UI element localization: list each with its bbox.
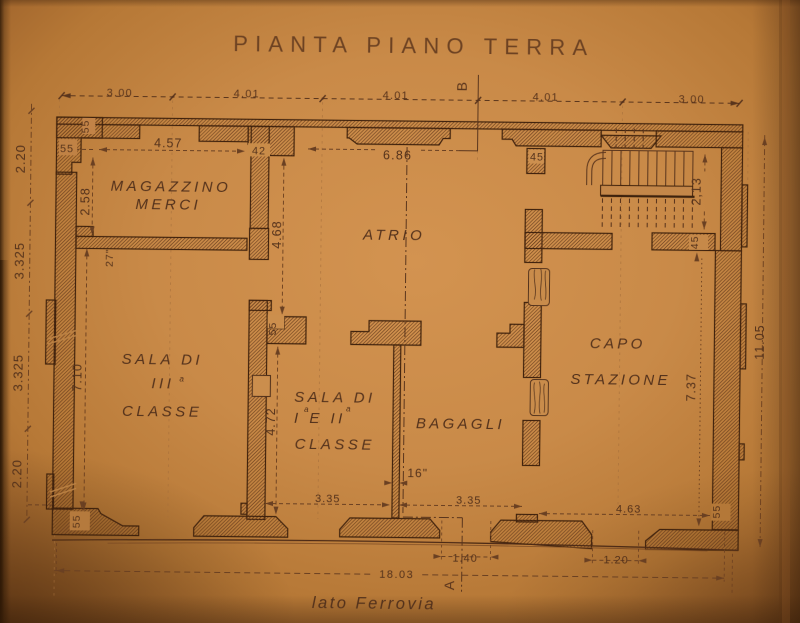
svg-text:45: 45 <box>689 235 701 249</box>
svg-text:3.325: 3.325 <box>10 354 25 392</box>
svg-text:3.325: 3.325 <box>12 242 27 280</box>
svg-text:III: III <box>151 375 174 392</box>
svg-text:6.86: 6.86 <box>383 148 412 162</box>
svg-text:7.10: 7.10 <box>70 363 84 392</box>
svg-text:B: B <box>454 82 470 92</box>
svg-text:2.20: 2.20 <box>13 144 28 173</box>
svg-text:4.72: 4.72 <box>264 407 278 436</box>
svg-text:3.00: 3.00 <box>107 87 133 99</box>
svg-text:CAPO: CAPO <box>590 335 646 353</box>
svg-text:3.35: 3.35 <box>456 495 482 507</box>
svg-text:3.35: 3.35 <box>315 493 341 505</box>
svg-text:55: 55 <box>711 505 723 519</box>
svg-text:1.20: 1.20 <box>603 554 629 566</box>
svg-text:CLASSE: CLASSE <box>295 436 375 454</box>
svg-text:55: 55 <box>60 143 74 155</box>
svg-text:4.01: 4.01 <box>234 88 260 100</box>
svg-text:lato Ferrovia: lato Ferrovia <box>312 594 436 613</box>
svg-text:7.37: 7.37 <box>684 373 698 402</box>
svg-text:ATRIO: ATRIO <box>362 227 425 245</box>
svg-text:PIANTA PIANO TERRA: PIANTA PIANO TERRA <box>233 31 594 60</box>
svg-text:16": 16" <box>407 466 428 480</box>
svg-text:55: 55 <box>267 322 279 336</box>
svg-text:55: 55 <box>80 120 92 134</box>
svg-text:A: A <box>441 580 457 590</box>
svg-text:27": 27" <box>104 248 116 267</box>
svg-text:1.40: 1.40 <box>452 553 478 565</box>
svg-text:4.01: 4.01 <box>383 90 409 102</box>
svg-text:2.58: 2.58 <box>78 187 92 216</box>
svg-text:4.57: 4.57 <box>154 136 183 150</box>
svg-text:42: 42 <box>252 145 266 157</box>
svg-text:11.05: 11.05 <box>753 324 767 360</box>
svg-text:2,13: 2,13 <box>689 177 703 206</box>
svg-text:a: a <box>346 404 351 413</box>
svg-text:STAZIONE: STAZIONE <box>570 371 670 389</box>
svg-text:I E II: I E II <box>294 410 346 428</box>
svg-text:MERCI: MERCI <box>135 196 201 214</box>
svg-text:a: a <box>304 405 309 414</box>
svg-text:MAGAZZINO: MAGAZZINO <box>111 178 232 196</box>
svg-text:SALA DI: SALA DI <box>122 351 204 369</box>
svg-text:4.68: 4.68 <box>270 220 284 249</box>
svg-text:2.20: 2.20 <box>9 459 24 488</box>
svg-text:BAGAGLI: BAGAGLI <box>416 415 505 433</box>
svg-text:3.00: 3.00 <box>679 94 705 106</box>
svg-text:4.63: 4.63 <box>616 503 642 515</box>
svg-text:CLASSE: CLASSE <box>122 403 202 421</box>
svg-text:a: a <box>179 375 184 384</box>
svg-text:18.03: 18.03 <box>379 569 414 581</box>
svg-text:55: 55 <box>71 514 83 528</box>
svg-text:4.01: 4.01 <box>533 91 559 103</box>
svg-text:45: 45 <box>530 151 544 163</box>
